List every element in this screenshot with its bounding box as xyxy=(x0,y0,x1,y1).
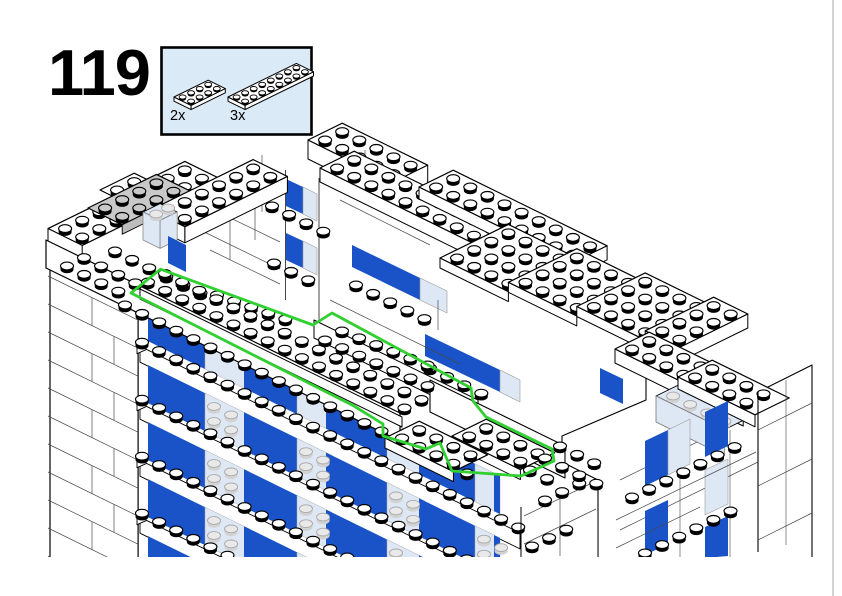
svg-text:119: 119 xyxy=(48,36,150,109)
svg-text:3x: 3x xyxy=(230,108,246,124)
svg-text:2x: 2x xyxy=(170,108,186,124)
